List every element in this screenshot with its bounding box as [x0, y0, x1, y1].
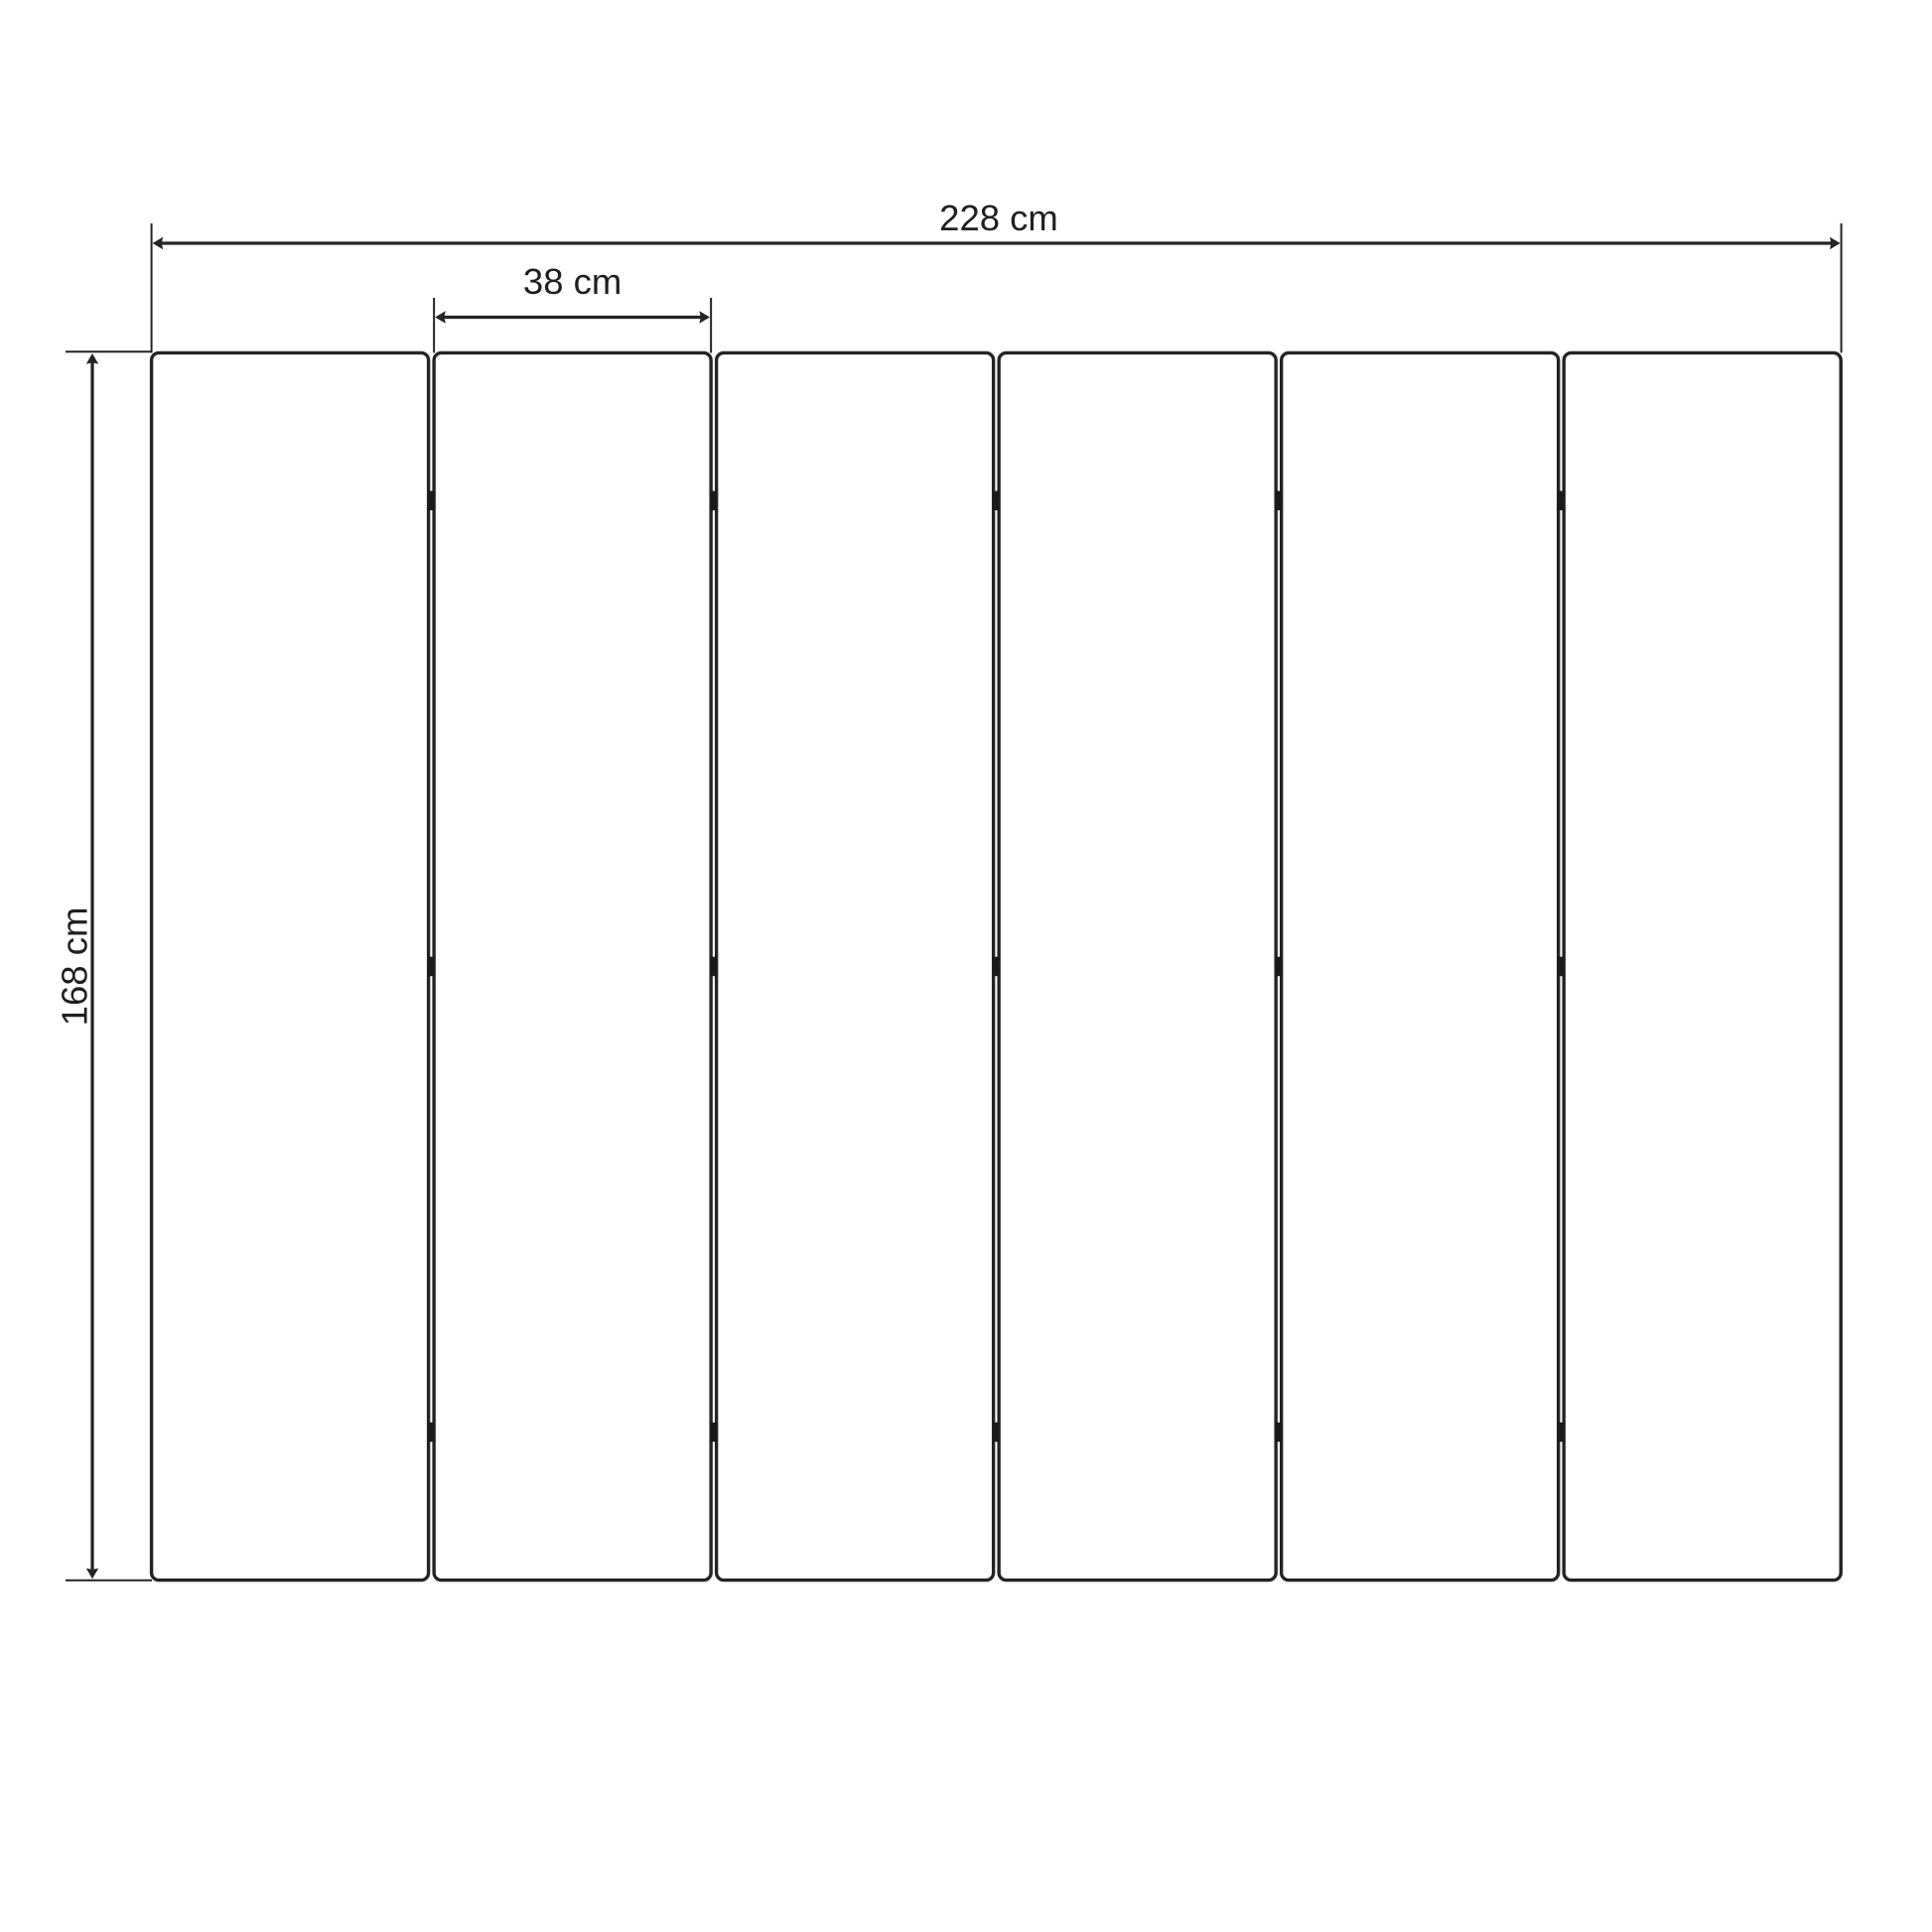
svg-text:38 cm: 38 cm: [523, 261, 621, 302]
svg-text:228 cm: 228 cm: [939, 198, 1058, 238]
svg-text:168 cm: 168 cm: [55, 907, 95, 1027]
